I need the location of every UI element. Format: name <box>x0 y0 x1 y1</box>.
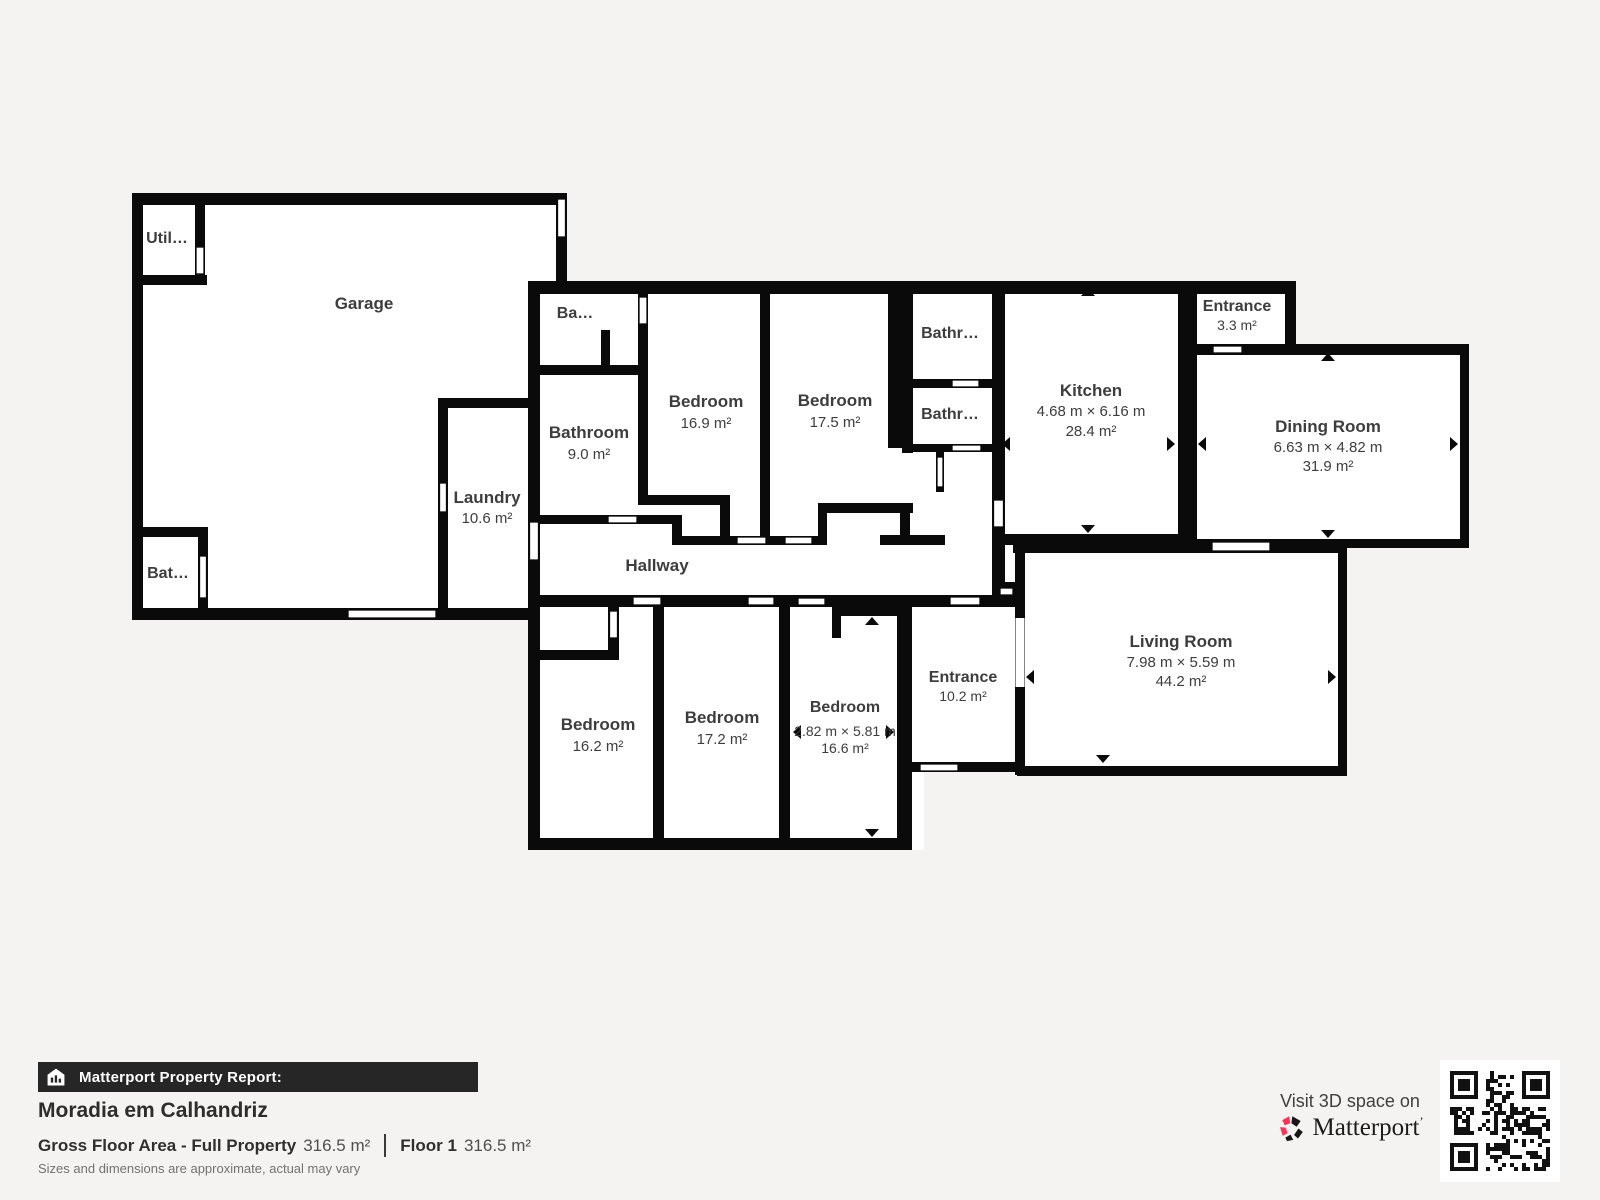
room-label-bedroom-169: Bedroom <box>669 392 744 411</box>
gross-floor-area-label: Gross Floor Area - Full Property <box>38 1136 296 1156</box>
room-label-laundry: Laundry <box>453 488 521 507</box>
floor-area-stats: Gross Floor Area - Full Property 316.5 m… <box>38 1134 531 1157</box>
door-bathroom-9 <box>608 516 637 523</box>
door-bathroom-top <box>639 297 647 324</box>
room-label-entrance-main: Entrance <box>929 669 998 686</box>
room-area-bedroom-166: 16.6 m² <box>821 740 869 756</box>
house-chart-icon <box>47 1068 65 1086</box>
door-closet <box>1000 588 1013 595</box>
room-area-bedroom-169: 16.9 m² <box>681 415 732 432</box>
room-dims-bedroom-166: 2.82 m × 5.81 m <box>794 723 896 739</box>
door-laundry <box>530 522 539 560</box>
room-area-kitchen: 28.4 m² <box>1066 423 1117 440</box>
gross-floor-area-value: 316.5 m² <box>303 1136 370 1156</box>
report-header-bar: Matterport Property Report: <box>38 1062 478 1092</box>
door-bedroom-162 <box>633 597 661 605</box>
disclaimer-text: Sizes and dimensions are approximate, ac… <box>38 1161 360 1176</box>
room-area-bedroom-175: 17.5 m² <box>810 414 861 431</box>
door-utility <box>196 247 204 274</box>
door-bedroom-175 <box>785 537 812 544</box>
visit-3d-text: Visit 3D space on <box>1240 1091 1460 1112</box>
room-label-hallway: Hallway <box>625 556 689 575</box>
room-label-bedroom-172: Bedroom <box>685 708 760 727</box>
room-area-bathroom-9: 9.0 m² <box>568 446 611 463</box>
room-dims-living: 7.98 m × 5.59 m <box>1127 654 1236 671</box>
room-label-bathroom-2: Bathr… <box>921 406 979 423</box>
room-area-entrance-main: 10.2 m² <box>939 688 987 704</box>
room-label-bathroom-top: Ba… <box>557 305 593 322</box>
floor-1-label: Floor 1 <box>400 1136 457 1156</box>
door-bathroom-garage <box>200 556 207 598</box>
room-label-bathroom-garage: Bat… <box>147 565 189 582</box>
room-label-bedroom-175: Bedroom <box>798 391 873 410</box>
report-header-label: Matterport Property Report: <box>79 1069 282 1086</box>
door-bath-small <box>610 611 618 638</box>
door-bedroom-172 <box>748 597 774 605</box>
room-area-bedroom-172: 17.2 m² <box>697 731 748 748</box>
floor-plan: Util… Garage Bat… Laundry 10.6 m² Ba… Ba… <box>0 0 1600 1020</box>
opening-living-entrance <box>1016 618 1025 687</box>
room-label-garage: Garage <box>335 294 394 313</box>
matterport-logo-icon <box>1277 1114 1305 1142</box>
room-dims-kitchen: 4.68 m × 6.16 m <box>1037 403 1146 420</box>
door-kitchen <box>994 500 1004 527</box>
property-name: Moradia em Calhandriz <box>38 1099 268 1123</box>
room-area-bedroom-162: 16.2 m² <box>573 738 624 755</box>
room-label-bedroom-162: Bedroom <box>561 715 636 734</box>
floor-1-value: 316.5 m² <box>464 1136 531 1156</box>
room-dims-dining: 6.63 m × 4.82 m <box>1274 439 1383 456</box>
window-laundry <box>440 483 447 512</box>
room-label-dining: Dining Room <box>1275 417 1381 436</box>
door-hall-stub <box>937 457 943 487</box>
stats-divider <box>384 1134 386 1157</box>
window-dining-living <box>1212 542 1270 551</box>
room-label-bedroom-166: Bedroom <box>810 699 880 716</box>
door-entrance-main <box>950 597 980 605</box>
qr-code <box>1440 1060 1560 1182</box>
room-label-kitchen: Kitchen <box>1060 381 1122 400</box>
window-garage <box>558 199 566 237</box>
room-area-laundry: 10.6 m² <box>462 510 513 527</box>
door-entrance-small <box>1213 346 1242 353</box>
door-bathroom-2 <box>952 445 981 451</box>
matterport-brand: Matterport’ <box>1240 1114 1460 1142</box>
room-label-utility: Util… <box>146 230 188 247</box>
qr-pattern <box>1450 1071 1550 1171</box>
door-bedroom-166 <box>798 598 825 605</box>
front-door <box>920 764 958 771</box>
matterport-wordmark: Matterport’ <box>1313 1114 1424 1142</box>
door-bathroom-1 <box>952 380 979 387</box>
room-area-dining: 31.9 m² <box>1303 458 1354 475</box>
room-area-living: 44.2 m² <box>1156 673 1207 690</box>
garage-door <box>348 610 436 618</box>
room-label-bathroom-1: Bathr… <box>921 325 979 342</box>
room-area-entrance-small: 3.3 m² <box>1217 317 1257 333</box>
door-bedroom-169 <box>737 537 766 544</box>
property-report-page: Util… Garage Bat… Laundry 10.6 m² Ba… Ba… <box>0 0 1600 1200</box>
room-label-bathroom-9: Bathroom <box>549 423 629 442</box>
room-label-living: Living Room <box>1130 632 1233 651</box>
room-label-entrance-small: Entrance <box>1203 298 1272 315</box>
